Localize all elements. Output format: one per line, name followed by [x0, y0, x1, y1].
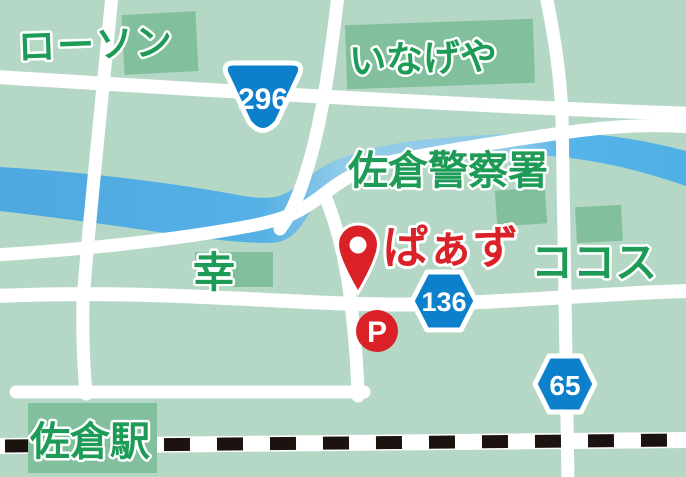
route-badge-65: 65	[535, 356, 595, 412]
label-sachi: 幸	[193, 249, 235, 296]
building-police-station	[495, 187, 547, 226]
route-65-number: 65	[549, 370, 580, 401]
building-cocos	[575, 205, 623, 243]
route-badge-136: 136	[412, 272, 476, 330]
parking-marker: P	[356, 310, 398, 352]
map-pin-hole	[350, 237, 367, 254]
route-136-number: 136	[421, 287, 466, 317]
route-296-number: 296	[238, 83, 288, 116]
label-station: 佐倉駅	[29, 420, 150, 464]
map-canvas: ローソン いなげや 佐倉警察署 幸 ココス 佐倉駅 ぱぁず P 296 136 …	[0, 0, 686, 477]
access-map: ローソン いなげや 佐倉警察署 幸 ココス 佐倉駅 ぱぁず P 296 136 …	[0, 0, 686, 477]
label-destination: ぱぁず	[383, 222, 518, 273]
label-lawson: ローソン	[17, 21, 174, 67]
parking-letter: P	[367, 316, 387, 349]
label-police-station: 佐倉警察署	[347, 149, 548, 193]
label-inageya: いなげや	[348, 36, 497, 82]
label-cocos: ココス	[531, 239, 657, 286]
